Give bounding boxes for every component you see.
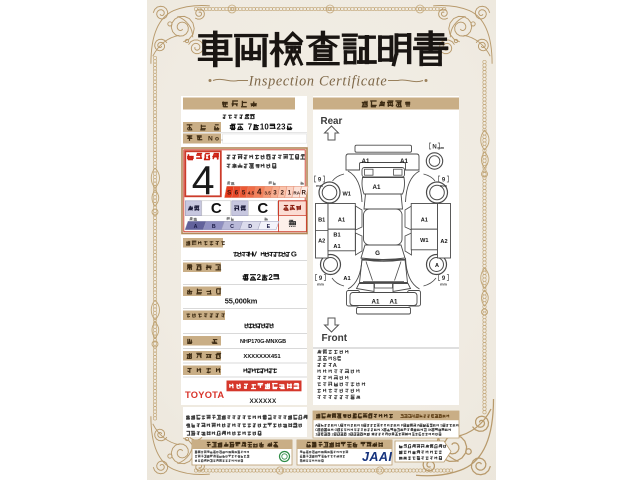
- svg-text:A1: A1: [390, 298, 398, 305]
- svg-text:G: G: [375, 250, 380, 257]
- svg-text:G: G: [291, 250, 297, 259]
- svg-text:TOYOTA: TOYOTA: [185, 390, 224, 400]
- svg-text:A1: A1: [421, 217, 428, 223]
- svg-text:C: C: [211, 200, 222, 217]
- svg-text:A1: A1: [362, 158, 370, 165]
- svg-text:Front: Front: [322, 333, 348, 344]
- svg-text:mm: mm: [437, 146, 444, 150]
- svg-text:mm: mm: [440, 282, 447, 286]
- svg-text:Inspection Certificate: Inspection Certificate: [248, 74, 388, 90]
- svg-text:1: 1: [288, 190, 292, 197]
- svg-text:S: S: [227, 190, 231, 197]
- svg-text:JAAI: JAAI: [362, 450, 392, 464]
- svg-text:4: 4: [257, 188, 262, 197]
- svg-text:C: C: [257, 200, 268, 217]
- svg-text:A1: A1: [333, 244, 340, 250]
- svg-text:55,000km: 55,000km: [225, 297, 258, 306]
- svg-text:C: C: [230, 224, 234, 230]
- svg-text:mm: mm: [316, 184, 323, 188]
- svg-text:2: 2: [280, 190, 284, 197]
- svg-text:N o .: N o .: [208, 136, 223, 143]
- svg-text:3: 3: [273, 190, 277, 197]
- svg-text:A1: A1: [372, 298, 380, 305]
- svg-text:2: 2: [332, 431, 334, 436]
- svg-text:A: A: [194, 224, 198, 230]
- svg-text:6: 6: [235, 190, 239, 197]
- svg-text:7: 7: [248, 123, 253, 132]
- svg-text:3: 3: [281, 123, 286, 132]
- svg-text:N: N: [432, 144, 436, 150]
- svg-text:A2: A2: [318, 238, 325, 244]
- svg-text:U: U: [338, 423, 341, 428]
- svg-text:0: 0: [264, 123, 269, 132]
- svg-text:2: 2: [257, 273, 262, 282]
- svg-text:B: B: [212, 224, 216, 230]
- svg-text:B1: B1: [318, 217, 325, 223]
- svg-text:4.5: 4.5: [248, 191, 255, 196]
- svg-text:mm: mm: [317, 282, 324, 286]
- svg-text:D: D: [248, 224, 252, 230]
- svg-text:4: 4: [192, 158, 215, 204]
- svg-text:XXXXXXX451: XXXXXXX451: [243, 354, 281, 360]
- svg-text:B: B: [361, 423, 364, 428]
- svg-text:W1: W1: [420, 238, 428, 244]
- svg-text:A1: A1: [373, 184, 381, 191]
- svg-text:mm: mm: [440, 184, 447, 188]
- svg-text:3.5: 3.5: [264, 191, 271, 196]
- svg-text:R: R: [301, 190, 306, 197]
- svg-text:W1: W1: [343, 191, 351, 197]
- svg-text:A2: A2: [440, 239, 447, 245]
- svg-text:E: E: [267, 224, 271, 230]
- svg-text:NHP170G-MNXGB: NHP170G-MNXGB: [240, 339, 286, 345]
- svg-text:A1: A1: [400, 158, 408, 165]
- svg-text:G: G: [335, 427, 338, 432]
- svg-text:A: A: [435, 263, 439, 269]
- svg-text:A1: A1: [338, 217, 345, 223]
- svg-text:XXXXXX: XXXXXX: [250, 398, 277, 405]
- svg-text:5: 5: [242, 190, 246, 197]
- svg-text:2: 2: [268, 273, 273, 282]
- svg-text:A1: A1: [343, 276, 350, 282]
- svg-text:V: V: [252, 250, 258, 259]
- svg-text:S: S: [333, 356, 337, 362]
- svg-text:B1: B1: [333, 233, 340, 239]
